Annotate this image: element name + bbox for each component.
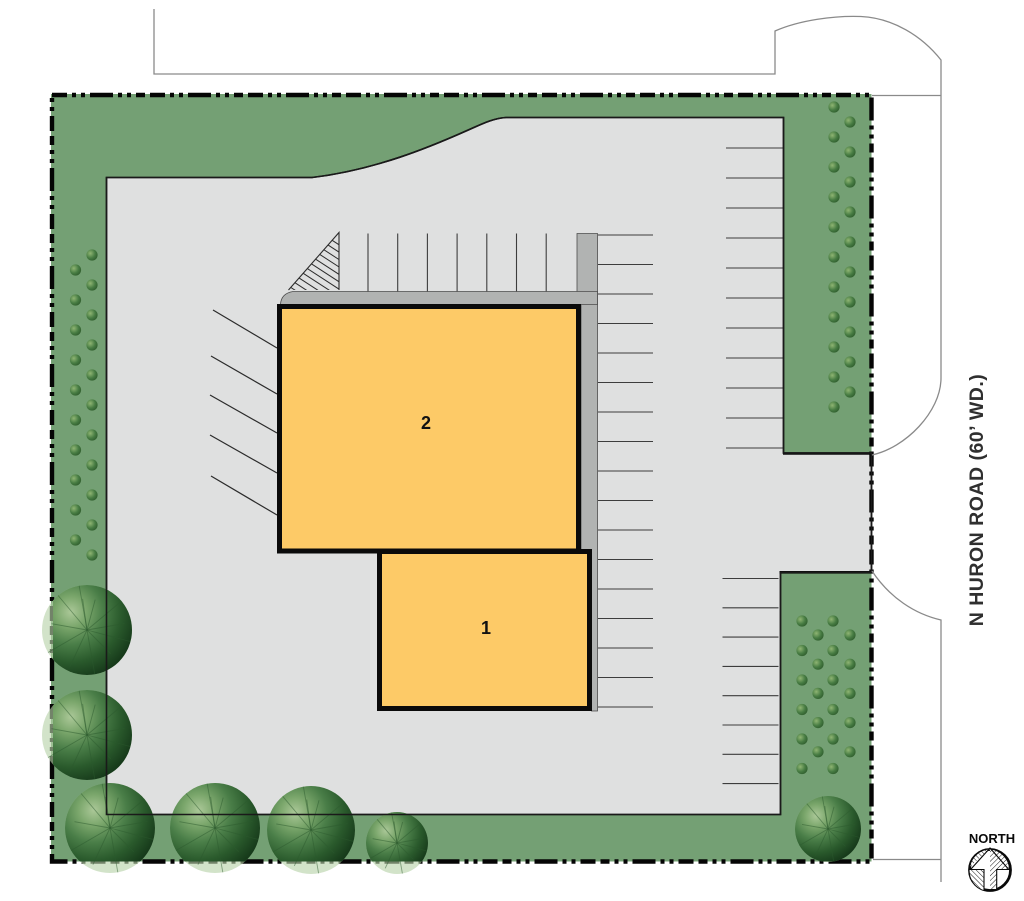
svg-text:N HURON ROAD (60’ WD.): N HURON ROAD (60’ WD.) xyxy=(966,374,988,627)
svg-text:NORTH: NORTH xyxy=(969,831,1015,846)
svg-text:2: 2 xyxy=(421,413,431,433)
svg-text:1: 1 xyxy=(481,618,491,638)
